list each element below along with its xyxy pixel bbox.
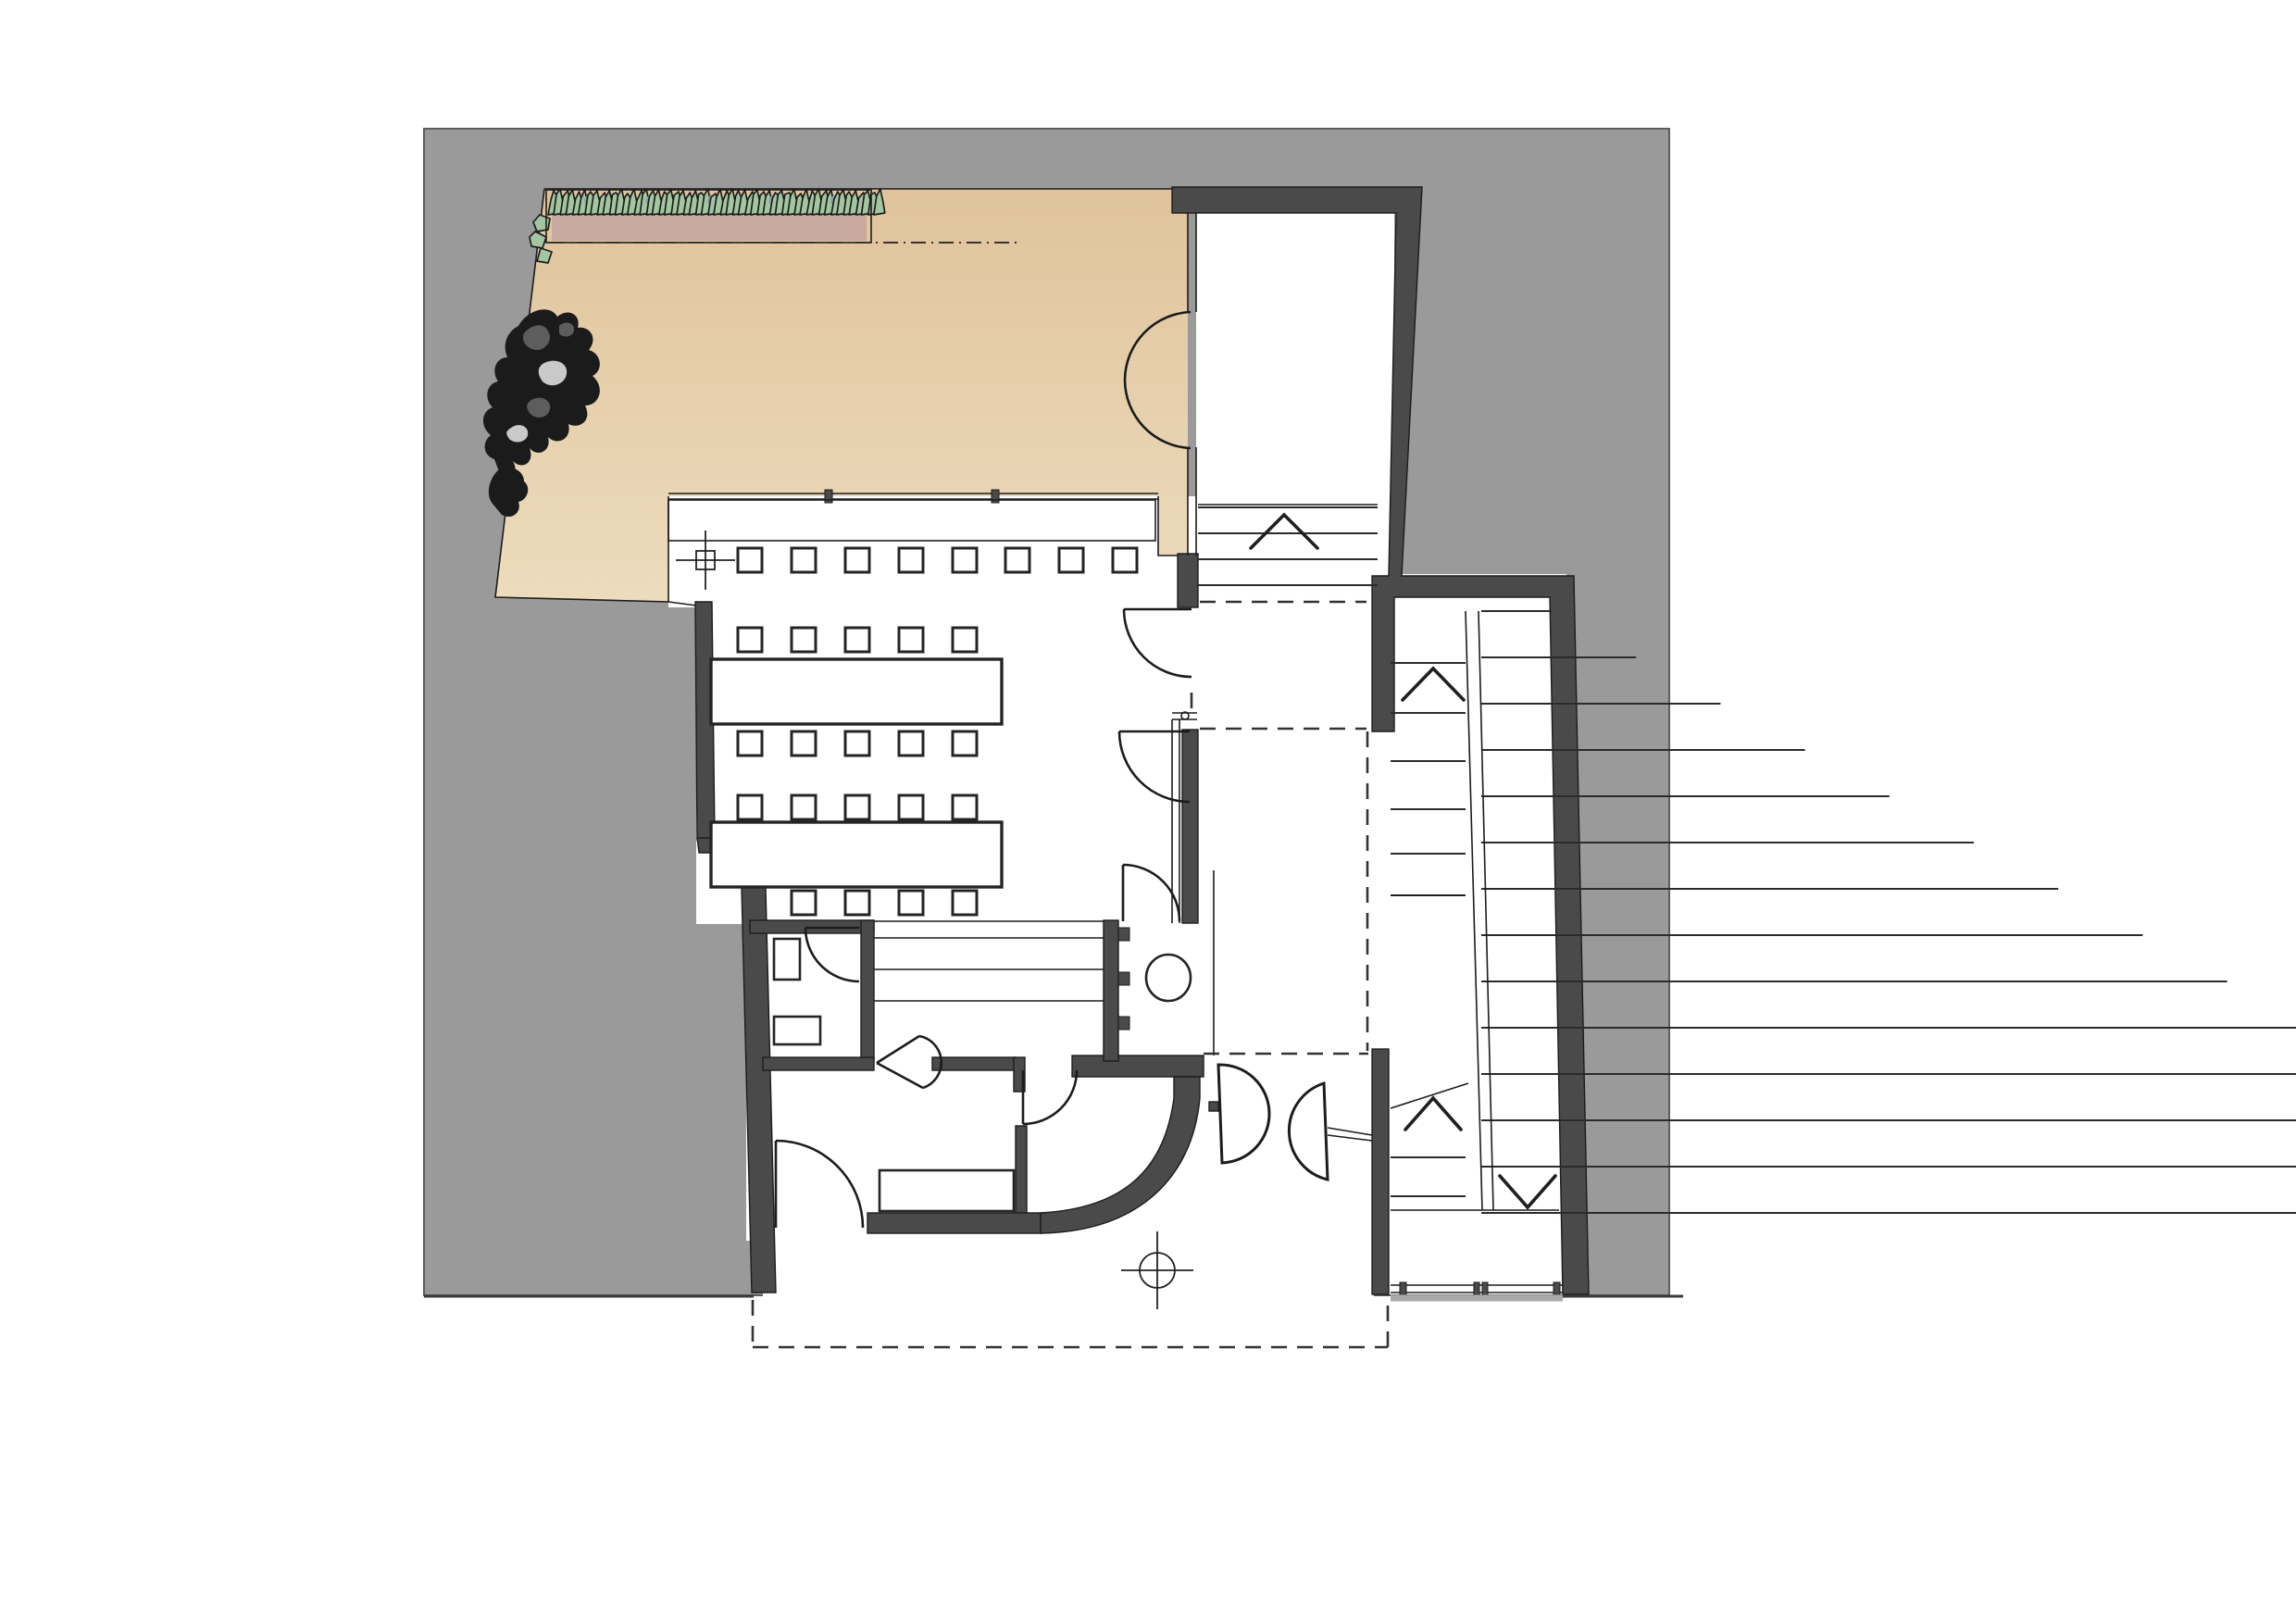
wc-east-wall [861, 920, 874, 1061]
entrance-east-pier [1372, 1049, 1389, 1294]
mid-partition-wall [932, 1057, 1016, 1070]
floor-plan-drawing [0, 0, 2296, 1624]
south-wall [867, 1213, 1041, 1233]
hall-east-pier-lower [1182, 730, 1198, 923]
store-room-bench [880, 1170, 1014, 1211]
door-hinge-nub [1209, 1102, 1218, 1111]
store-room-east-wall [1016, 1126, 1027, 1218]
wc-basin [1146, 955, 1191, 1001]
wc-south-wall [763, 1057, 874, 1070]
basin-room-west-wall [1104, 920, 1118, 1061]
floor-plan-page [0, 0, 2296, 1624]
hall-east-pier-upper [1178, 554, 1198, 607]
vestibule-north-wall [1072, 1056, 1204, 1077]
